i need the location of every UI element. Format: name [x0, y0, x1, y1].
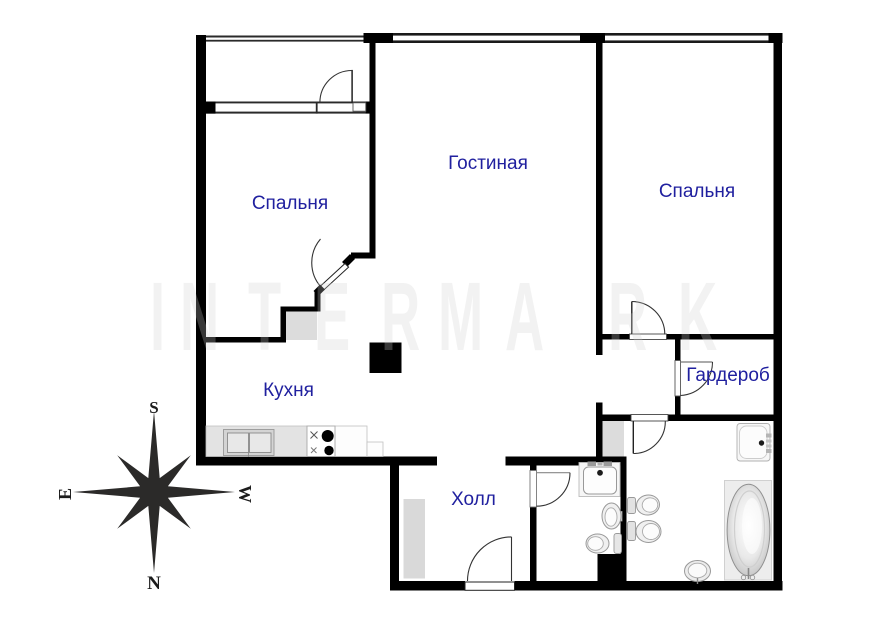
svg-text:W: W	[235, 485, 255, 503]
svg-text:Холл: Холл	[451, 489, 496, 510]
svg-text:N: N	[147, 573, 161, 594]
svg-text:R: R	[608, 262, 647, 371]
svg-text:M: M	[438, 262, 483, 371]
svg-text:Кухня: Кухня	[263, 380, 314, 401]
svg-text:E: E	[55, 488, 75, 500]
svg-text:K: K	[678, 262, 717, 371]
svg-text:Спальня: Спальня	[252, 193, 328, 214]
svg-text:S: S	[149, 398, 158, 417]
svg-text:Гостиная: Гостиная	[448, 153, 528, 174]
svg-text:Спальня: Спальня	[659, 181, 735, 202]
svg-text:I: I	[150, 262, 165, 371]
svg-text:T: T	[248, 262, 281, 371]
svg-text:N: N	[180, 262, 219, 371]
svg-text:A: A	[505, 262, 544, 371]
svg-text:Гардероб: Гардероб	[686, 365, 770, 386]
svg-text:E: E	[314, 262, 350, 371]
svg-text:R: R	[381, 262, 420, 371]
